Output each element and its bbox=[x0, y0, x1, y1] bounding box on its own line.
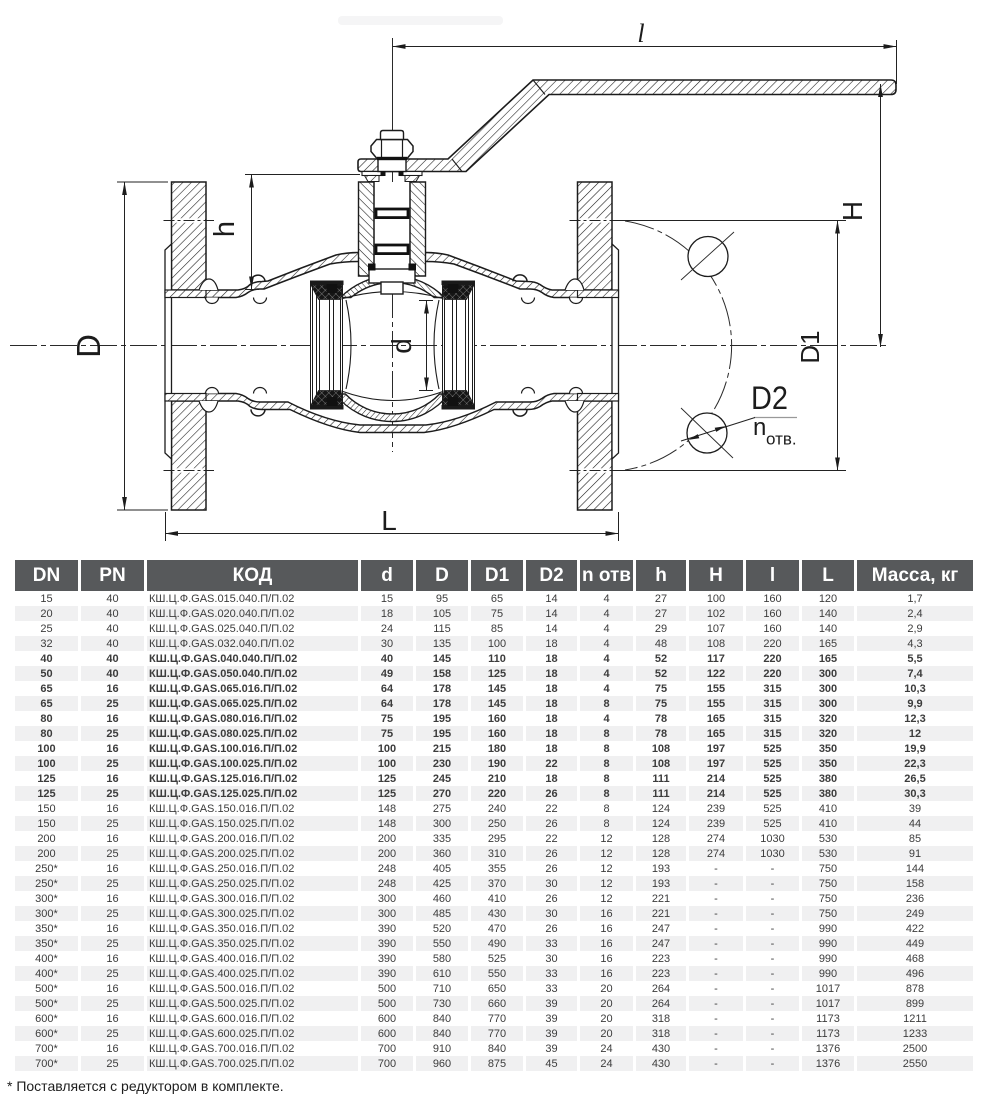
svg-text:отв.: отв. bbox=[766, 430, 797, 449]
svg-text:L: L bbox=[381, 505, 397, 536]
svg-text:h: h bbox=[209, 221, 241, 237]
svg-text:n: n bbox=[753, 414, 766, 441]
svg-text:d: d bbox=[386, 338, 417, 354]
svg-text:l: l bbox=[637, 19, 644, 48]
svg-text:H: H bbox=[837, 201, 868, 221]
svg-text:D2: D2 bbox=[751, 380, 788, 416]
svg-text:D: D bbox=[70, 334, 107, 358]
svg-text:D1: D1 bbox=[795, 330, 825, 363]
